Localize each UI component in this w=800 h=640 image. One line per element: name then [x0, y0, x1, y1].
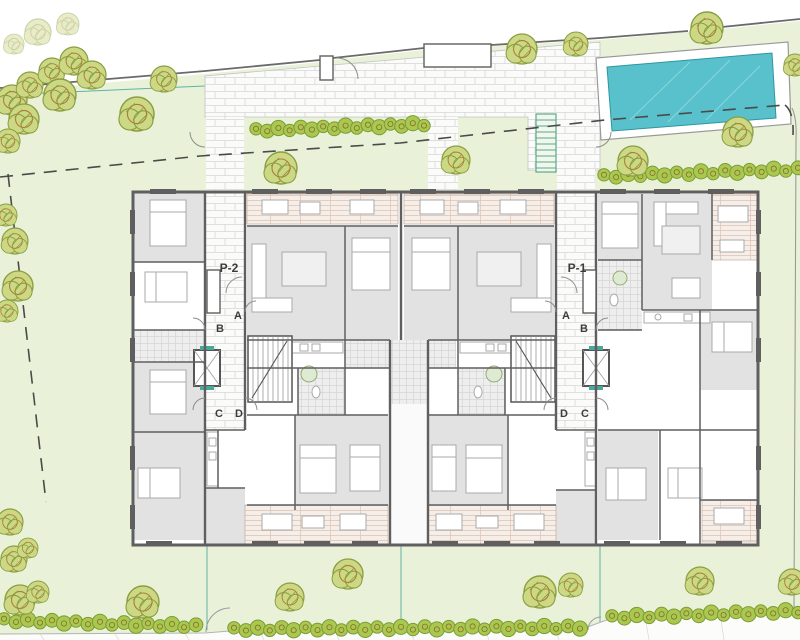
- tree-icon: [24, 19, 51, 45]
- tree-icon: [0, 129, 20, 153]
- entrance-jamb-right: [583, 270, 596, 313]
- shrub-icon: [418, 119, 430, 131]
- shrub-icon: [606, 610, 618, 622]
- tree-icon: [563, 32, 588, 56]
- tree-icon: [523, 576, 556, 608]
- exterior-stair: [536, 114, 556, 172]
- terrace-table: [436, 514, 544, 530]
- tree-icon: [722, 117, 753, 147]
- building: [130, 132, 761, 546]
- shrub-icon: [766, 161, 781, 176]
- shrub-icon: [393, 619, 408, 634]
- shrub-icon: [629, 607, 644, 622]
- elevator-left: [194, 346, 220, 390]
- lightwell: [390, 404, 428, 545]
- pool-water: [607, 53, 776, 131]
- unit-label-d-left: D: [235, 408, 243, 420]
- entrance-jamb-left: [207, 270, 220, 313]
- tree-icon: [0, 509, 23, 535]
- entrance-label-p1: P-1: [568, 261, 587, 275]
- existing-structure: [424, 44, 491, 67]
- shrub-icon: [550, 623, 562, 635]
- bed: [150, 200, 186, 246]
- shrub-icon: [598, 169, 610, 181]
- shrub-icon: [666, 609, 681, 624]
- bed: [138, 468, 180, 498]
- unit-label-a-right: A: [562, 310, 570, 322]
- bed: [352, 238, 390, 290]
- tree-icon: [2, 271, 33, 301]
- tree-icon: [690, 12, 723, 44]
- tree-icon: [56, 13, 79, 35]
- shrub-icon: [92, 614, 107, 629]
- shrub-icon: [407, 623, 419, 635]
- shrub-icon: [780, 165, 792, 177]
- shrub-icon: [730, 165, 745, 180]
- tree-icon: [77, 61, 106, 89]
- tree-icon: [126, 586, 159, 618]
- toilet: [312, 386, 320, 398]
- terrace-table: [262, 514, 366, 530]
- terrace-table: [262, 200, 374, 214]
- tree-icon: [0, 204, 17, 226]
- shrub-icon: [371, 621, 383, 633]
- unit-label-b-right: B: [580, 323, 588, 335]
- shrub-icon: [537, 618, 552, 633]
- unit-label-b-left: B: [216, 323, 224, 335]
- bed: [466, 445, 502, 493]
- bed: [412, 238, 450, 290]
- kitchen-counter: [207, 432, 218, 486]
- shrub-icon: [335, 624, 347, 636]
- shrub-icon: [264, 624, 276, 636]
- bed: [606, 468, 646, 500]
- shrub-icon: [299, 621, 311, 633]
- bed: [300, 445, 336, 493]
- tree-icon: [26, 581, 49, 603]
- shrub-icon: [228, 622, 240, 634]
- shrub-icon: [106, 619, 118, 631]
- bed: [602, 202, 638, 248]
- bed: [712, 322, 752, 352]
- shrub-icon: [741, 607, 756, 622]
- shrub-icon: [358, 622, 373, 637]
- tree-icon: [617, 146, 648, 176]
- bed: [432, 445, 456, 491]
- site-plan-page: P-2 P-1 A B C D A B D C: [0, 0, 800, 640]
- terrace-table: [420, 200, 526, 214]
- unit-label-a-left: A: [234, 310, 242, 322]
- tree-icon: [1, 228, 28, 254]
- shrub-icon: [322, 620, 337, 635]
- unit-label-c-right: C: [581, 408, 589, 420]
- bath-basin: [613, 271, 627, 285]
- site-plan-drawing: P-2 P-1 A B C D A B D C: [0, 0, 800, 640]
- entrance-label-p2: P-2: [220, 261, 239, 275]
- shrub-icon: [128, 618, 143, 633]
- shrub-icon: [657, 168, 672, 183]
- bed: [150, 370, 186, 414]
- walkway-right: [557, 117, 595, 193]
- shrub-icon: [501, 621, 516, 636]
- shrub-icon: [189, 618, 203, 632]
- shrub-icon: [791, 161, 800, 175]
- shrub-icon: [164, 616, 179, 631]
- tree-icon: [264, 152, 297, 184]
- tree-icon: [275, 583, 304, 611]
- shrub-icon: [478, 623, 490, 635]
- shrub-icon: [250, 620, 265, 635]
- shrub-icon: [443, 620, 455, 632]
- tree-icon: [0, 300, 18, 322]
- shrub-icon: [34, 617, 46, 629]
- tree-icon: [17, 538, 38, 558]
- shrub-icon: [707, 167, 719, 179]
- tree-icon: [332, 559, 363, 589]
- shrub-icon: [514, 620, 526, 632]
- bed: [350, 445, 380, 491]
- shrub-icon: [56, 616, 71, 631]
- shrub-icon: [778, 603, 793, 618]
- tree-icon: [685, 567, 714, 595]
- shrub-icon: [572, 621, 587, 636]
- toilet: [474, 386, 482, 398]
- shrub-icon: [178, 621, 190, 633]
- tree-icon: [119, 97, 154, 131]
- shrub-icon: [142, 617, 154, 629]
- stair-core-right: [511, 336, 555, 402]
- shrub-icon: [792, 606, 800, 618]
- kitchen-counter: [585, 432, 596, 486]
- shrub-icon: [717, 609, 729, 621]
- unit-label-d-right: D: [560, 408, 568, 420]
- shrub-icon: [693, 164, 708, 179]
- tree-icon: [441, 146, 470, 174]
- bed: [145, 272, 187, 302]
- terrace-table: [714, 508, 744, 524]
- tree-icon: [43, 79, 76, 111]
- toilet: [610, 294, 618, 306]
- shrub-icon: [755, 605, 767, 617]
- shrub-icon: [0, 613, 10, 625]
- swimming-pool: [596, 42, 791, 140]
- tree-icon: [558, 573, 583, 597]
- unit-label-c-left: C: [215, 408, 223, 420]
- tree-icon: [506, 34, 537, 64]
- shrub-icon: [743, 163, 755, 175]
- shrub-icon: [671, 166, 683, 178]
- tree-icon: [150, 66, 177, 92]
- tree-icon: [3, 34, 24, 54]
- shrub-icon: [70, 615, 82, 627]
- gate-post: [320, 56, 333, 80]
- stair-core-left: [248, 336, 292, 402]
- shrub-icon: [680, 607, 692, 619]
- bed: [668, 468, 702, 498]
- shrub-icon: [465, 619, 480, 634]
- shrub-icon: [429, 622, 444, 637]
- shrub-icon: [286, 623, 301, 638]
- shrub-icon: [643, 611, 655, 623]
- shrub-icon: [704, 605, 719, 620]
